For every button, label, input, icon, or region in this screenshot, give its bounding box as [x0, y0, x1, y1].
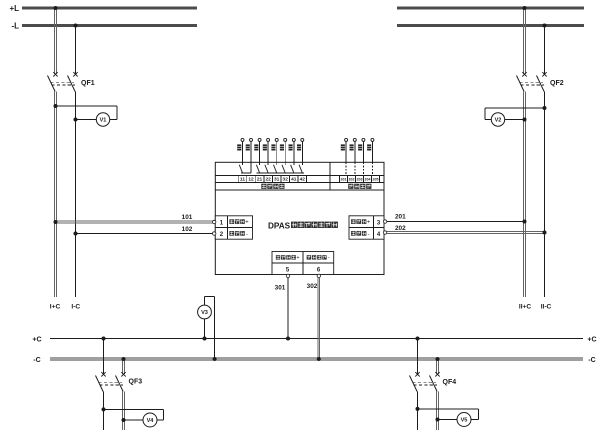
svg-text:QF3: QF3 — [129, 379, 143, 386]
svg-text:301: 301 — [275, 285, 286, 292]
svg-text:21: 21 — [257, 177, 263, 183]
svg-text:V5: V5 — [461, 418, 468, 424]
svg-text:+C: +C — [32, 337, 41, 344]
svg-text:I+C: I+C — [50, 304, 61, 311]
svg-text:V3: V3 — [201, 310, 208, 316]
svg-text:-L: -L — [11, 22, 19, 31]
svg-text:202: 202 — [395, 225, 406, 232]
svg-text:QF2: QF2 — [550, 80, 564, 87]
svg-text:-: - — [328, 255, 330, 261]
svg-text:QF1: QF1 — [81, 80, 95, 87]
svg-text:204: 204 — [365, 177, 371, 181]
svg-text:II+C: II+C — [519, 304, 532, 311]
svg-text:V2: V2 — [495, 118, 502, 124]
svg-text:31: 31 — [274, 177, 280, 183]
svg-text:201: 201 — [341, 177, 347, 181]
svg-text:205: 205 — [373, 177, 379, 181]
svg-text:V4: V4 — [147, 418, 155, 424]
svg-text:V1: V1 — [100, 118, 107, 124]
svg-text:DPAS: DPAS — [268, 222, 291, 231]
svg-text:12: 12 — [248, 177, 254, 183]
svg-text:102: 102 — [182, 226, 193, 233]
svg-text:+L: +L — [9, 4, 19, 13]
svg-text:41: 41 — [291, 177, 297, 183]
svg-text:QF4: QF4 — [443, 379, 457, 386]
svg-text:II-C: II-C — [541, 304, 552, 311]
svg-text:203: 203 — [357, 177, 363, 181]
svg-text:201: 201 — [395, 214, 406, 221]
svg-text:42: 42 — [300, 177, 306, 183]
svg-text:-: - — [368, 231, 370, 237]
svg-text:202: 202 — [349, 177, 355, 181]
svg-text:-: - — [246, 231, 248, 237]
svg-text:302: 302 — [307, 283, 318, 290]
svg-text:-C: -C — [588, 357, 595, 364]
svg-text:11: 11 — [240, 177, 245, 183]
svg-text:+: + — [296, 255, 299, 261]
svg-text:101: 101 — [182, 214, 193, 221]
svg-text:-C: -C — [33, 357, 40, 364]
svg-text:+C: +C — [587, 337, 596, 344]
svg-text:22: 22 — [265, 177, 271, 183]
svg-text:I-C: I-C — [71, 304, 80, 311]
svg-text:32: 32 — [283, 177, 289, 183]
